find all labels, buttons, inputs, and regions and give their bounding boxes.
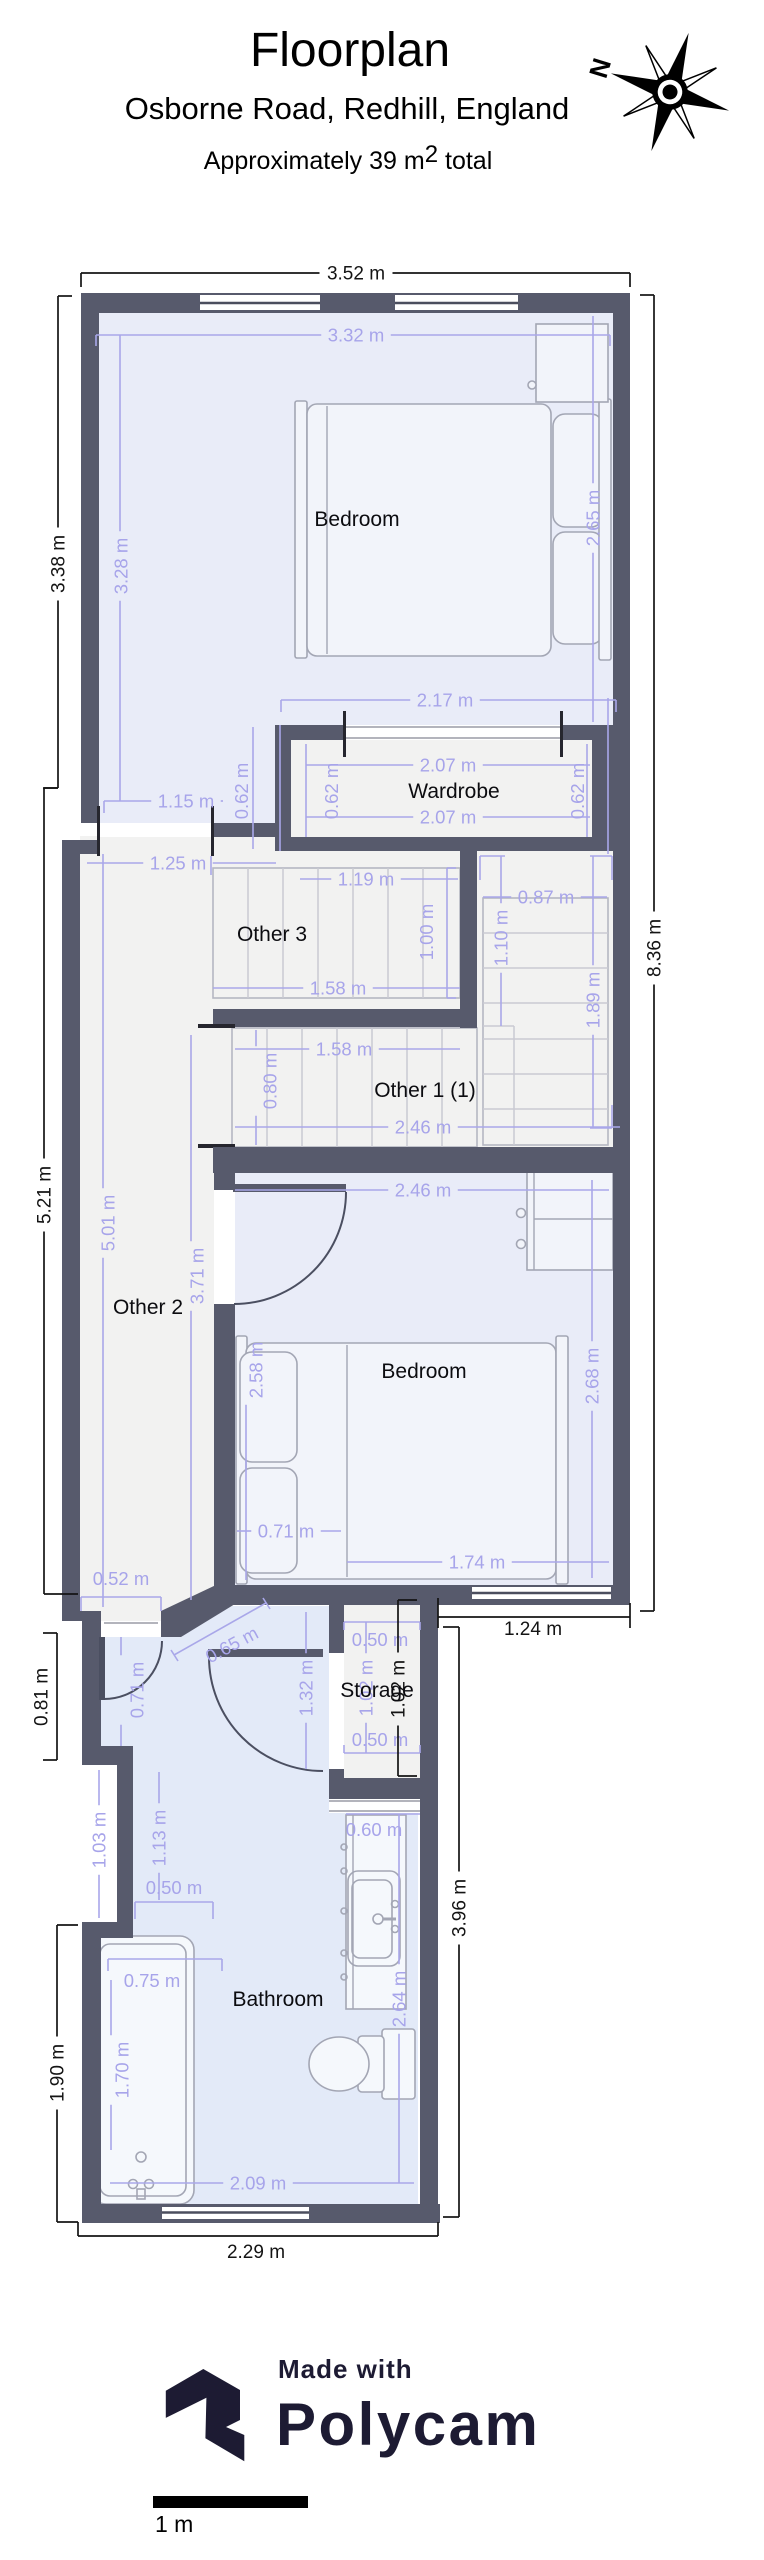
svg-text:0.87 m: 0.87 m <box>518 886 575 907</box>
svg-text:0.80 m: 0.80 m <box>259 1053 280 1110</box>
svg-text:1.74 m: 1.74 m <box>449 1551 506 1572</box>
svg-text:1.10 m: 1.10 m <box>490 910 511 967</box>
svg-text:2.07 m: 2.07 m <box>420 806 477 827</box>
svg-text:Made with: Made with <box>278 2354 413 2384</box>
svg-text:Other 2: Other 2 <box>113 1296 183 1319</box>
svg-text:2.09 m: 2.09 m <box>230 2172 287 2193</box>
svg-text:2.68 m: 2.68 m <box>581 1348 602 1405</box>
svg-text:3.38 m: 3.38 m <box>48 535 69 593</box>
svg-text:Polycam: Polycam <box>276 2391 540 2458</box>
svg-text:0.62 m: 0.62 m <box>231 763 252 820</box>
svg-text:3.28 m: 3.28 m <box>110 538 131 595</box>
svg-text:2.17 m: 2.17 m <box>417 689 474 710</box>
svg-text:5.21 m: 5.21 m <box>34 1166 55 1224</box>
svg-text:Wardrobe: Wardrobe <box>408 780 499 803</box>
svg-text:3.32 m: 3.32 m <box>328 324 385 345</box>
svg-text:0.50 m: 0.50 m <box>352 1729 409 1750</box>
svg-text:1 m: 1 m <box>155 2511 193 2537</box>
svg-text:3.96 m: 3.96 m <box>449 1879 470 1937</box>
svg-text:1.24 m: 1.24 m <box>504 1619 562 1640</box>
svg-text:Bathroom: Bathroom <box>232 1988 323 2011</box>
svg-text:0.62 m: 0.62 m <box>567 763 588 820</box>
svg-text:0.50 m: 0.50 m <box>352 1629 409 1650</box>
svg-text:Osborne Road, Redhill, England: Osborne Road, Redhill, England <box>125 91 570 126</box>
svg-text:0.71 m: 0.71 m <box>126 1662 147 1719</box>
svg-text:2.65 m: 2.65 m <box>582 490 603 547</box>
svg-text:Floorplan: Floorplan <box>250 24 450 77</box>
svg-text:1.70 m: 1.70 m <box>111 2042 132 2099</box>
svg-text:2.07 m: 2.07 m <box>420 754 477 775</box>
svg-text:1.58 m: 1.58 m <box>310 977 367 998</box>
svg-text:Bedroom: Bedroom <box>381 1360 466 1383</box>
svg-text:1.58 m: 1.58 m <box>316 1038 373 1059</box>
svg-text:2.46 m: 2.46 m <box>395 1116 452 1137</box>
svg-text:5.01 m: 5.01 m <box>97 1195 118 1252</box>
svg-text:2.29 m: 2.29 m <box>227 2242 285 2263</box>
svg-text:8.36 m: 8.36 m <box>644 919 665 977</box>
svg-text:1.15 m: 1.15 m <box>158 790 215 811</box>
svg-text:0.71 m: 0.71 m <box>258 1520 315 1541</box>
svg-text:3.71 m: 3.71 m <box>186 1248 207 1305</box>
svg-text:3.52 m: 3.52 m <box>327 263 385 284</box>
svg-text:1.89 m: 1.89 m <box>582 972 603 1029</box>
svg-text:Approximately 39 m2 total: Approximately 39 m2 total <box>204 141 493 175</box>
svg-text:2.46 m: 2.46 m <box>395 1179 452 1200</box>
svg-text:Other 3: Other 3 <box>237 923 307 946</box>
svg-text:Storage: Storage <box>340 1679 414 1702</box>
svg-text:0.81 m: 0.81 m <box>32 1668 53 1726</box>
svg-text:Bedroom: Bedroom <box>314 508 399 531</box>
svg-text:1.32 m: 1.32 m <box>295 1660 316 1717</box>
svg-text:1.13 m: 1.13 m <box>148 1810 169 1867</box>
svg-text:1.25 m: 1.25 m <box>150 852 207 873</box>
svg-text:0.75 m: 0.75 m <box>124 1970 181 1991</box>
svg-text:2.64 m: 2.64 m <box>388 1971 409 2028</box>
svg-text:1.00 m: 1.00 m <box>416 904 437 961</box>
svg-text:1.19 m: 1.19 m <box>338 868 395 889</box>
svg-text:2.58 m: 2.58 m <box>245 1342 266 1399</box>
svg-text:0.62 m: 0.62 m <box>321 763 342 820</box>
svg-text:0.52 m: 0.52 m <box>93 1568 150 1589</box>
svg-text:0.60 m: 0.60 m <box>346 1819 403 1840</box>
svg-text:1.03 m: 1.03 m <box>88 1812 109 1869</box>
svg-text:Other 1 (1): Other 1 (1) <box>374 1079 476 1102</box>
svg-text:N: N <box>583 55 617 82</box>
svg-text:0.50 m: 0.50 m <box>146 1877 203 1898</box>
svg-text:1.90 m: 1.90 m <box>47 2044 68 2102</box>
